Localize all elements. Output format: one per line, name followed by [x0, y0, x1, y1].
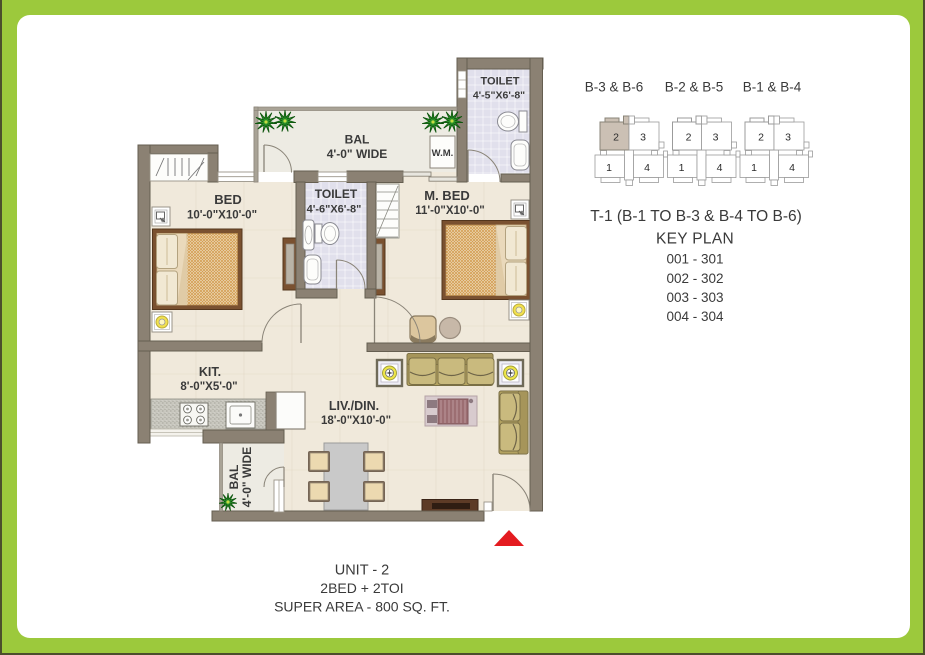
svg-text:2: 2 [758, 132, 764, 144]
svg-text:SUPER AREA - 800 SQ. FT.: SUPER AREA - 800 SQ. FT. [274, 599, 450, 615]
svg-text:3: 3 [640, 132, 646, 144]
svg-text:18'-0"X10'-0": 18'-0"X10'-0" [321, 415, 391, 427]
svg-text:T-1 (B-1 TO B-3 & B-4 TO B-6): T-1 (B-1 TO B-3 & B-4 TO B-6) [590, 208, 802, 225]
svg-text:B-3 & B-6: B-3 & B-6 [585, 80, 644, 95]
svg-text:4: 4 [644, 162, 650, 174]
svg-text:1: 1 [751, 162, 757, 174]
svg-text:2BED + 2TOI: 2BED + 2TOI [320, 580, 403, 596]
svg-text:KEY PLAN: KEY PLAN [656, 231, 734, 248]
svg-text:3: 3 [713, 132, 719, 144]
svg-text:004 - 304: 004 - 304 [666, 309, 724, 324]
svg-text:2: 2 [686, 132, 692, 144]
svg-text:BAL: BAL [227, 465, 241, 490]
svg-text:BAL: BAL [345, 133, 370, 147]
svg-text:10'-0"X10'-0": 10'-0"X10'-0" [187, 210, 257, 222]
svg-text:001 - 301: 001 - 301 [666, 252, 723, 267]
svg-text:TOILET: TOILET [315, 187, 358, 201]
svg-text:4'-0" WIDE: 4'-0" WIDE [240, 447, 254, 508]
svg-text:4'-6"X6'-8": 4'-6"X6'-8" [307, 204, 362, 216]
svg-text:TOILET: TOILET [481, 76, 520, 88]
svg-text:3: 3 [785, 132, 791, 144]
svg-text:M. BED: M. BED [424, 188, 470, 203]
svg-text:003 - 303: 003 - 303 [666, 290, 723, 305]
svg-text:KIT.: KIT. [199, 365, 221, 379]
svg-text:4: 4 [717, 162, 723, 174]
svg-text:002 - 302: 002 - 302 [666, 271, 723, 286]
svg-text:UNIT - 2: UNIT - 2 [335, 563, 390, 579]
svg-text:4'-0" WIDE: 4'-0" WIDE [327, 147, 388, 161]
svg-text:B-2 & B-5: B-2 & B-5 [665, 80, 724, 95]
svg-text:4: 4 [789, 162, 795, 174]
svg-text:LIV./DIN.: LIV./DIN. [329, 399, 379, 413]
svg-text:1: 1 [679, 162, 685, 174]
svg-text:11'-0"X10'-0": 11'-0"X10'-0" [415, 205, 484, 217]
svg-text:B-1 & B-4: B-1 & B-4 [743, 80, 802, 95]
svg-text:8'-0"X5'-0": 8'-0"X5'-0" [180, 381, 237, 393]
svg-text:1: 1 [606, 162, 612, 174]
svg-text:4'-5"X6'-8": 4'-5"X6'-8" [473, 90, 525, 102]
svg-text:2: 2 [613, 132, 619, 144]
svg-text:BED: BED [214, 192, 241, 207]
svg-text:W.M.: W.M. [432, 148, 454, 159]
